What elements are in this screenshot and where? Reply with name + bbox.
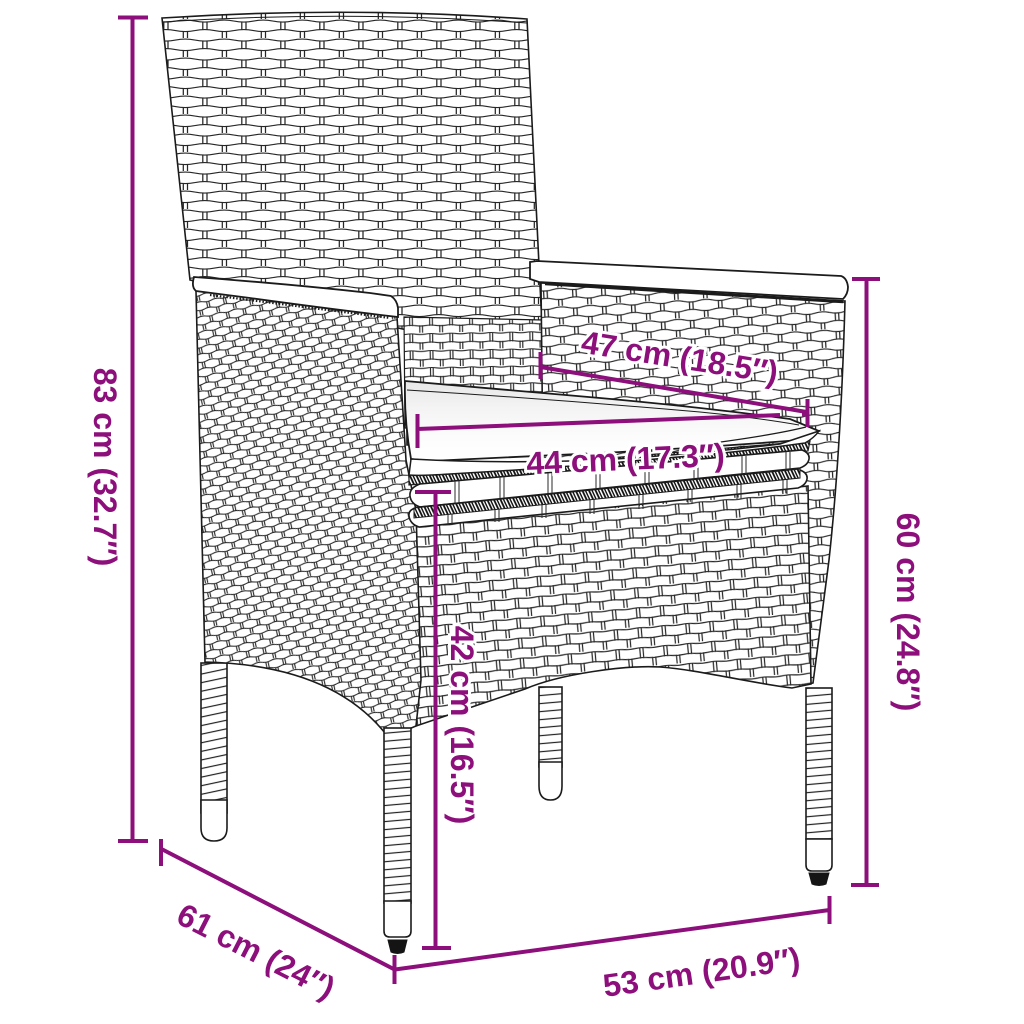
svg-text:60 cm (24.8″): 60 cm (24.8″)	[890, 513, 926, 712]
svg-text:42 cm (16.5″): 42 cm (16.5″)	[444, 626, 480, 825]
svg-text:83 cm (32.7″): 83 cm (32.7″)	[87, 368, 123, 567]
